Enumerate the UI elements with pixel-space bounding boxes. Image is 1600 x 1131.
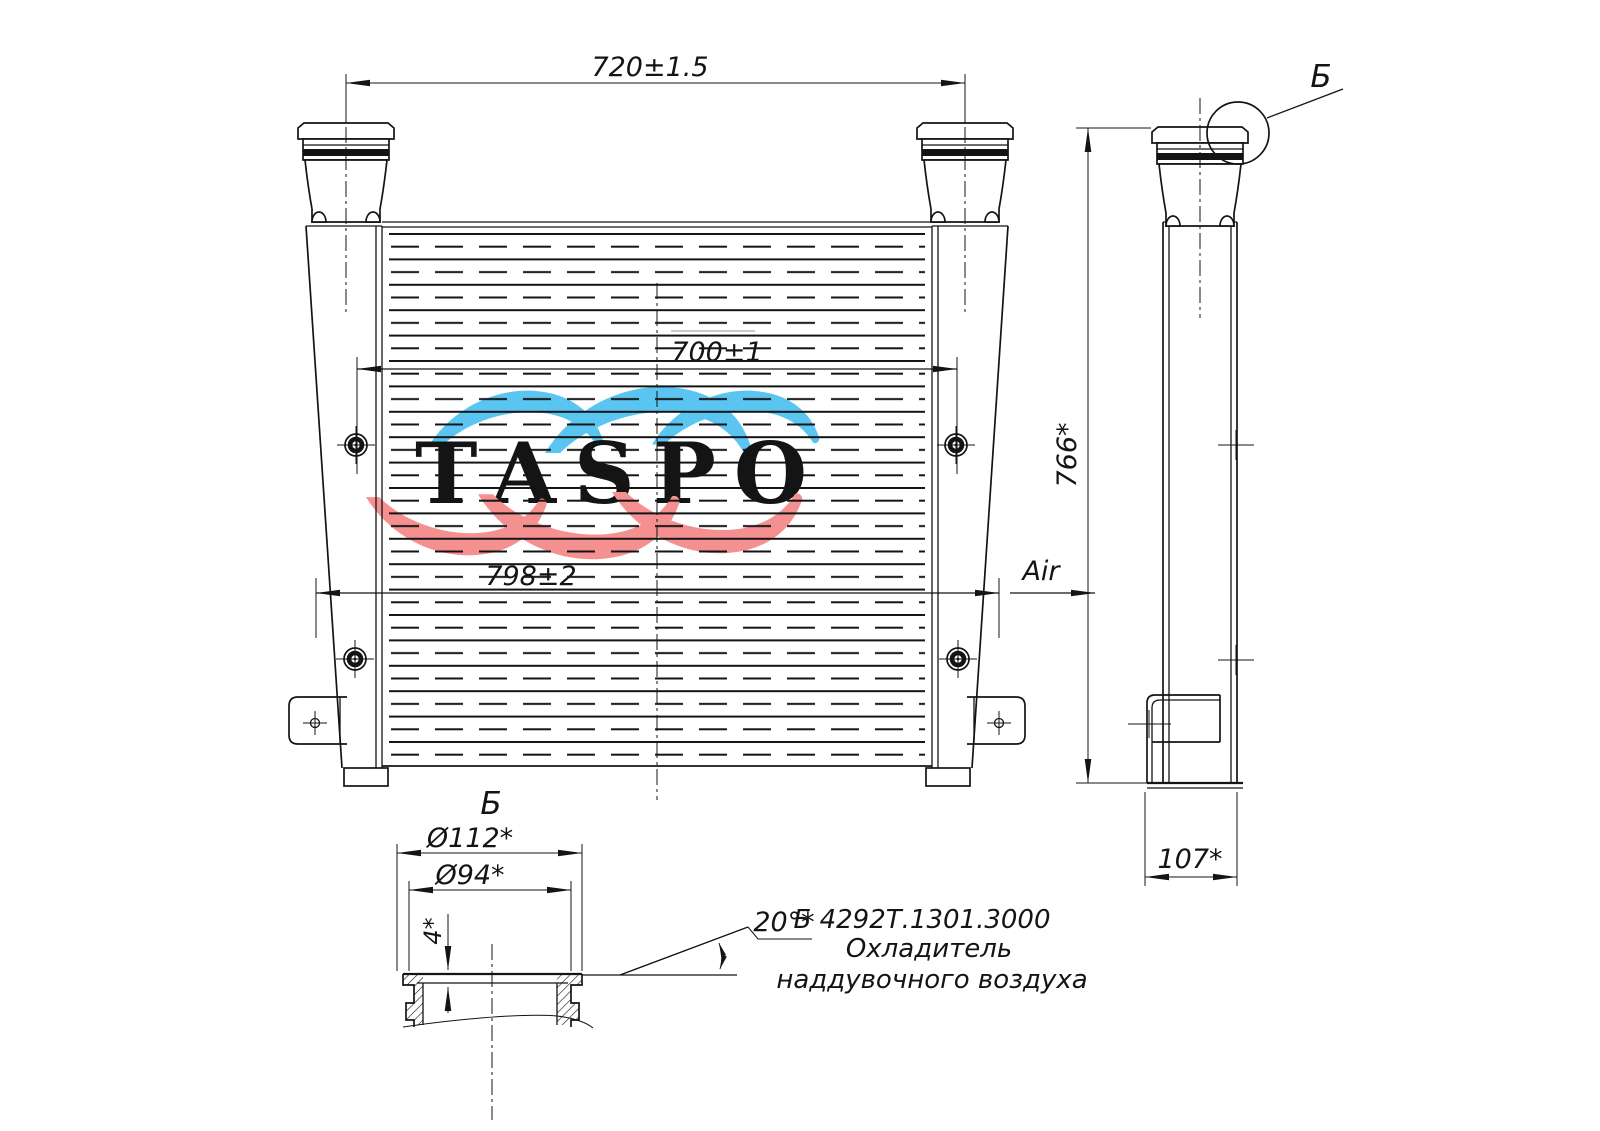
side-bracket bbox=[1128, 695, 1220, 783]
dim-overall-width-label: 798±2 bbox=[485, 561, 576, 592]
dim-flange-outer-dia: Ø112* bbox=[397, 823, 582, 971]
dim-depth-label: 107* bbox=[1157, 844, 1222, 875]
drawing-canvas: TASPO bbox=[0, 0, 1600, 1131]
side-view bbox=[1128, 127, 1254, 788]
mounting-hole-top-left bbox=[337, 426, 375, 464]
right-header bbox=[926, 226, 1008, 786]
left-header bbox=[306, 226, 388, 786]
air-flow-label: Air bbox=[1020, 556, 1061, 587]
air-flow-annotation: Air bbox=[1010, 556, 1095, 593]
part-code: Б 4292Т.1301.3000 bbox=[793, 905, 1050, 935]
dim-flange-bore-dia: Ø94* bbox=[409, 860, 571, 971]
dim-core-width-label: 700±1 bbox=[671, 337, 762, 368]
side-hole-tick-upper bbox=[1218, 430, 1254, 460]
part-name-line1: Охладитель bbox=[846, 934, 1012, 964]
dim-flange-outer-dia-label: Ø112* bbox=[426, 823, 513, 854]
part-name-line2: наддувочного воздуха bbox=[776, 965, 1087, 995]
engineering-drawing: TASPO bbox=[0, 0, 1600, 1131]
dim-flange-bore-dia-label: Ø94* bbox=[434, 860, 504, 891]
mounting-hole-bottom-right bbox=[939, 640, 977, 678]
side-hole-tick-lower bbox=[1218, 645, 1254, 675]
detail-view-label: Б bbox=[480, 786, 501, 822]
detail-view bbox=[403, 927, 812, 1028]
dim-flange-lip-label: 4* bbox=[419, 917, 447, 944]
dim-top-width: 720±1.5 bbox=[346, 52, 965, 121]
dim-top-width-label: 720±1.5 bbox=[591, 52, 708, 83]
dim-overall-height: 766* bbox=[1052, 128, 1151, 783]
part-title-block: Б 4292Т.1301.3000 Охладитель наддувочног… bbox=[776, 905, 1087, 995]
dim-depth: 107* bbox=[1145, 792, 1237, 886]
mounting-hole-bottom-left bbox=[336, 640, 374, 678]
dim-overall-height-label: 766* bbox=[1052, 422, 1083, 487]
detail-callout-label: Б bbox=[1310, 59, 1331, 95]
mounting-hole-top-right bbox=[937, 426, 975, 464]
